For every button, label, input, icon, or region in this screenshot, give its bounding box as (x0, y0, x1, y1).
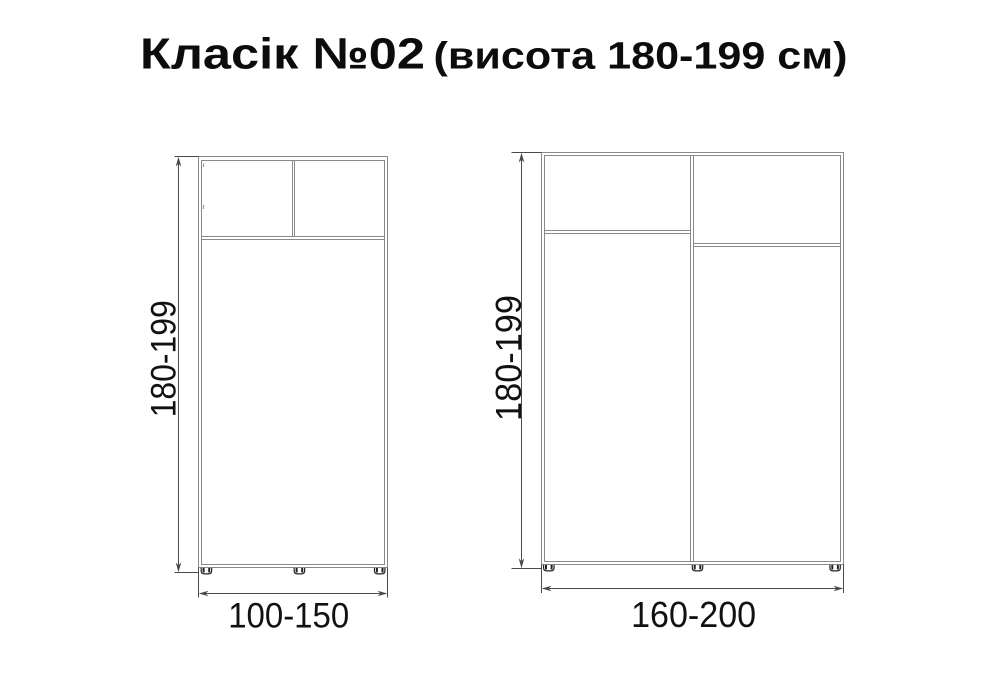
svg-text:100-150: 100-150 (228, 597, 349, 636)
svg-text:Класік №02: Класік №02 (140, 29, 425, 78)
svg-text:(висота 180-199 см): (висота 180-199 см) (434, 35, 848, 77)
svg-text:160-200: 160-200 (631, 594, 756, 635)
svg-text:180-199: 180-199 (488, 295, 529, 421)
svg-text:180-199: 180-199 (144, 300, 183, 417)
